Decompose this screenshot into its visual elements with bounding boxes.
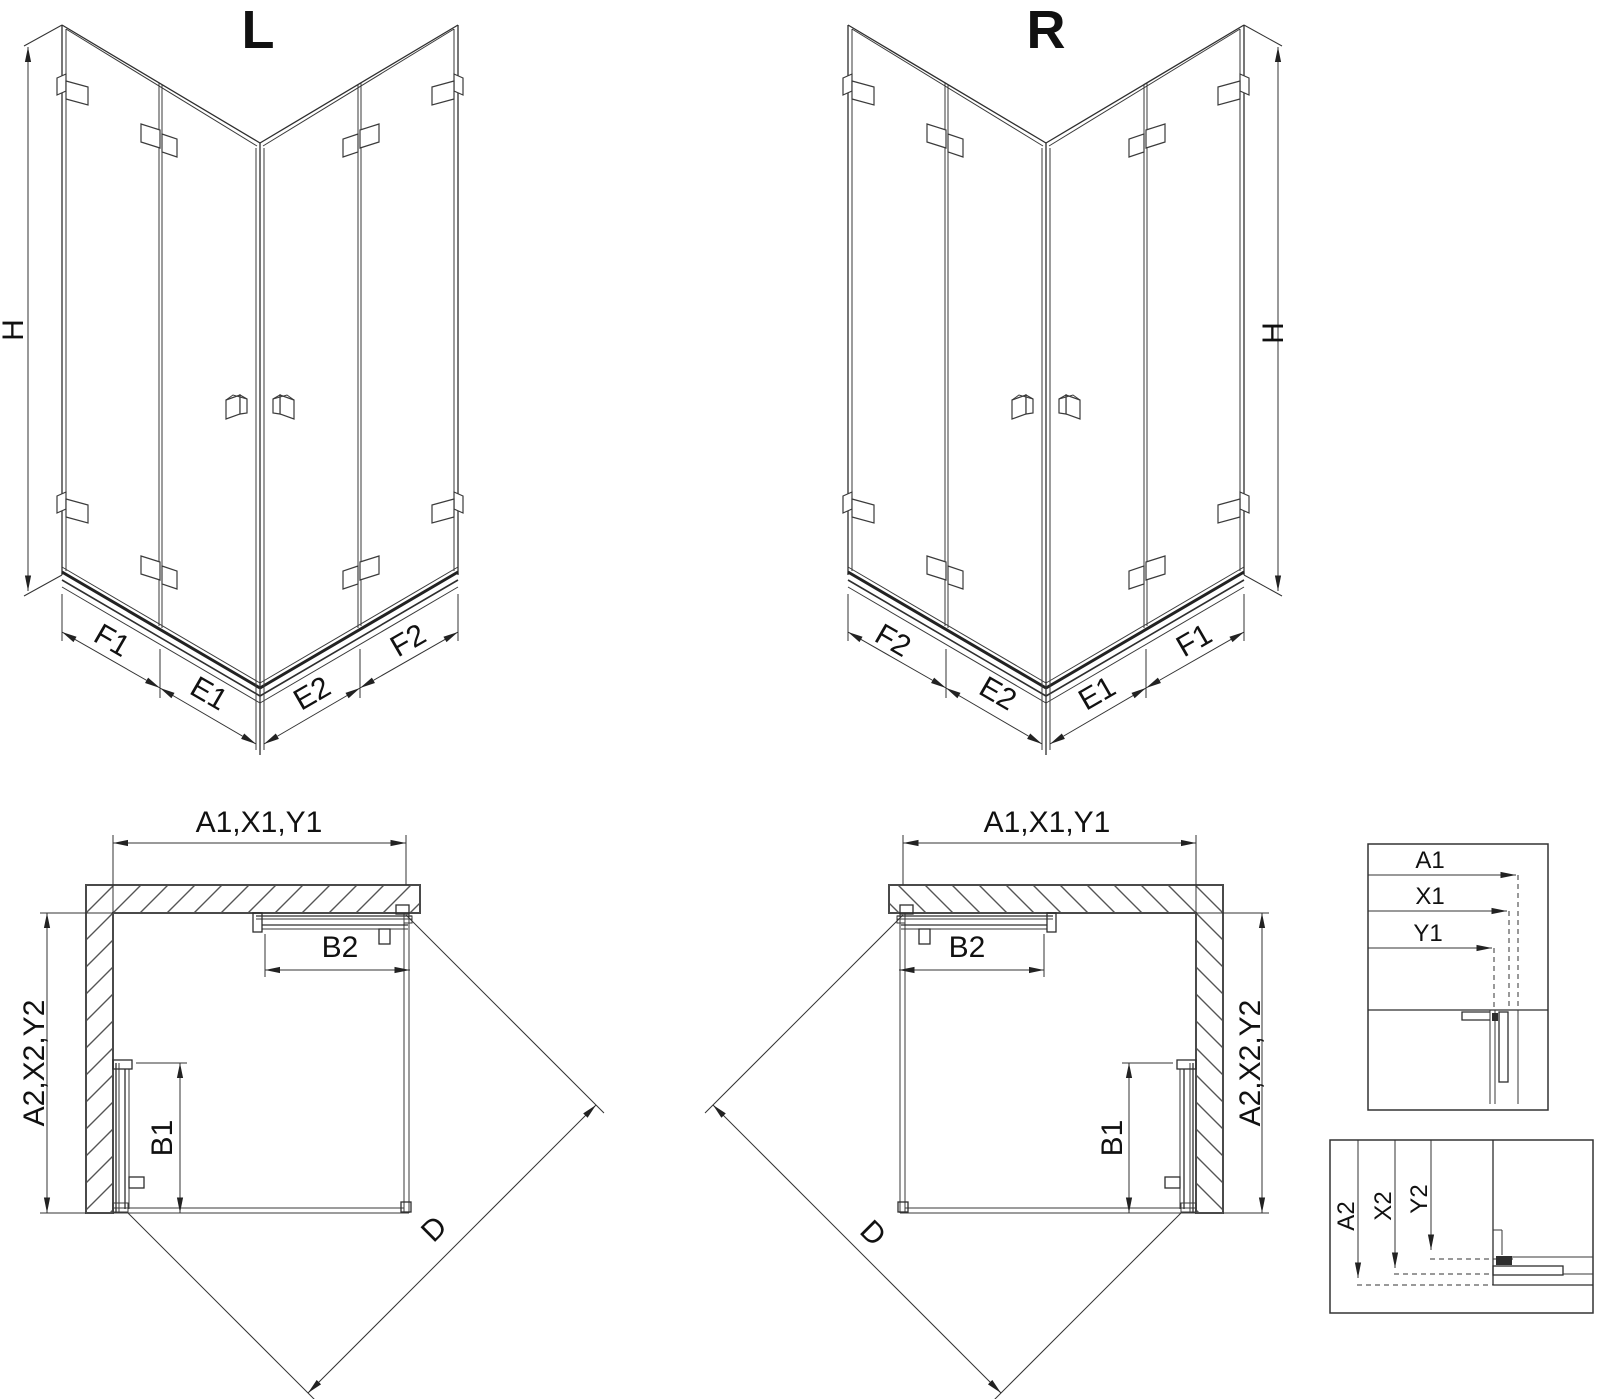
plan-left-linework xyxy=(40,835,604,1399)
iso-left-dim-h: H xyxy=(0,319,30,341)
plan-right-dim-a1x1y1: A1,X1,Y1 xyxy=(984,806,1111,839)
detail-top-dim-y1: Y1 xyxy=(1413,920,1442,947)
technical-drawing-page: L H F1 E1 E2 F2 R H F2 E2 E1 F1 A1,X1,Y1… xyxy=(0,0,1600,1399)
iso-right-dim-f2: F2 xyxy=(869,618,916,664)
iso-left-dim-e2: E2 xyxy=(288,670,336,717)
detail-box-a1x1y1: A1 X1 Y1 xyxy=(1368,844,1548,1110)
plan-view-left: A1,X1,Y1 A2,X2,Y2 B2 B1 D xyxy=(18,806,604,1399)
shower-enclosure-dimension-diagram: L H F1 E1 E2 F2 R H F2 E2 E1 F1 A1,X1,Y1… xyxy=(0,0,1600,1399)
plan-left-dim-b2: B2 xyxy=(322,931,359,964)
detail-bottom-dim-a2: A2 xyxy=(1333,1201,1360,1230)
plan-view-right: A1,X1,Y1 A2,X2,Y2 B2 B1 D xyxy=(705,806,1269,1399)
plan-left-dim-a2x2y2: A2,X2,Y2 xyxy=(18,1000,51,1127)
plan-left-dim-d: D xyxy=(415,1210,454,1249)
iso-right-dim-f1: F1 xyxy=(1171,618,1218,664)
iso-right-dim-e1: E1 xyxy=(1073,670,1121,717)
plan-right-dim-a2x2y2: A2,X2,Y2 xyxy=(1234,1000,1267,1127)
detail-box-a2x2y2: A2 X2 Y2 xyxy=(1330,1140,1593,1313)
detail-bottom-dim-y2: Y2 xyxy=(1406,1184,1433,1213)
plan-right-dim-b2: B2 xyxy=(949,931,986,964)
iso-left-title: L xyxy=(242,0,275,60)
iso-left-dim-e1: E1 xyxy=(185,670,233,717)
detail-top-dim-a1: A1 xyxy=(1415,847,1444,874)
iso-right-title: R xyxy=(1027,0,1066,60)
plan-left-dim-a1x1y1: A1,X1,Y1 xyxy=(196,806,323,839)
iso-view-left: L H F1 E1 E2 F2 xyxy=(0,0,463,755)
iso-view-right: R H F2 E2 E1 F1 xyxy=(843,0,1290,755)
iso-left-dim-f1: F1 xyxy=(88,618,135,664)
plan-right-dim-d: D xyxy=(853,1214,892,1253)
plan-right-linework xyxy=(705,835,1269,1399)
iso-left-dim-f2: F2 xyxy=(385,618,432,664)
plan-left-dim-b1: B1 xyxy=(146,1120,179,1157)
detail-top-dim-x1: X1 xyxy=(1415,883,1444,910)
plan-right-dim-b1: B1 xyxy=(1096,1120,1129,1157)
iso-right-dim-h: H xyxy=(1257,322,1290,344)
detail-bottom-dim-x2: X2 xyxy=(1370,1191,1397,1220)
